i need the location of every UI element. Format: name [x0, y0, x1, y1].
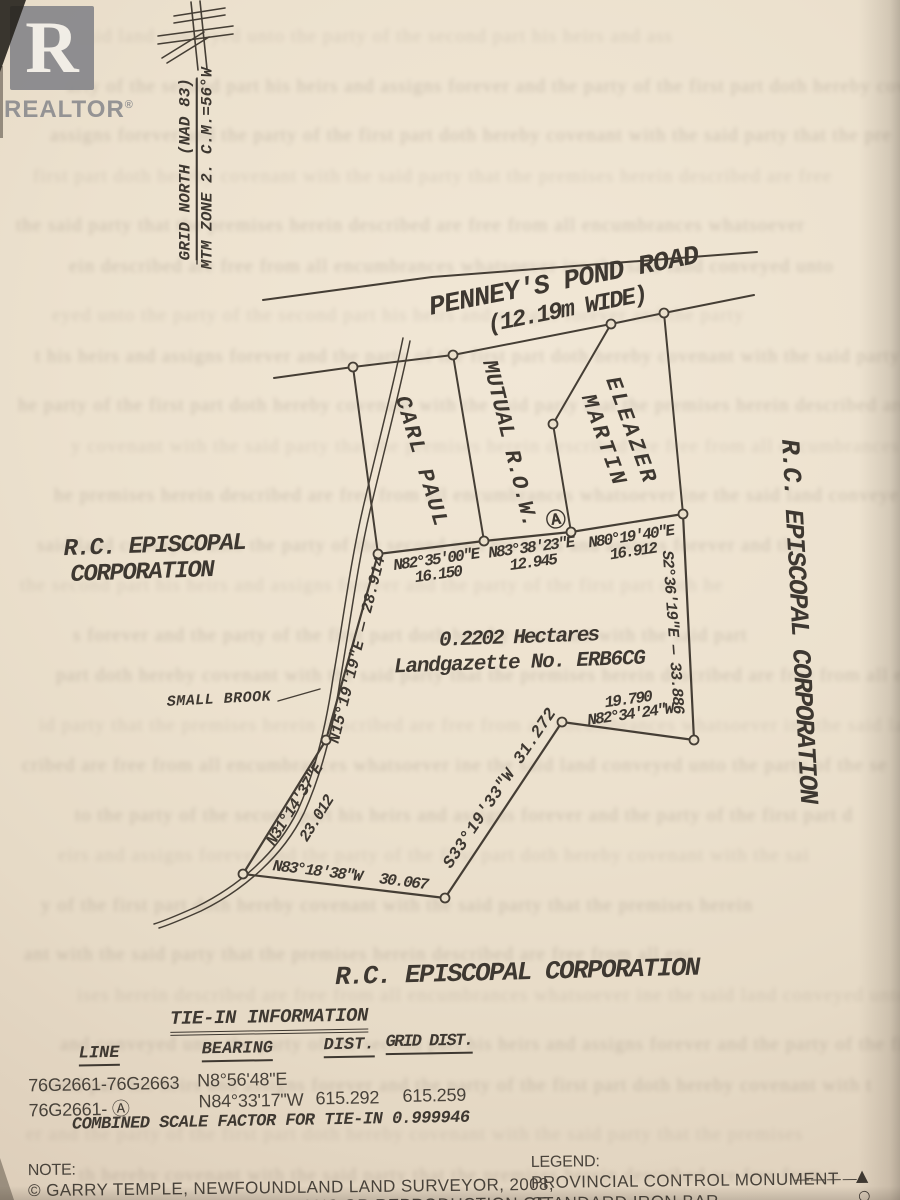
legend-heading: LEGEND: [531, 1153, 600, 1172]
note-heading: NOTE: [28, 1162, 76, 1181]
page-edge-shadow-bottom [0, 1186, 900, 1200]
note-legend-block: NOTE: © GARRY TEMPLE, NEWFOUNDLAND LAND … [0, 0, 900, 1200]
scanned-survey-plan: ine the said land conveyed unto the part… [0, 0, 900, 1200]
page-edge-shadow-right [858, 0, 900, 1200]
page-edge-shadow-left [0, 66, 3, 138]
legend-item1-dashes: — — — — [795, 1170, 856, 1187]
